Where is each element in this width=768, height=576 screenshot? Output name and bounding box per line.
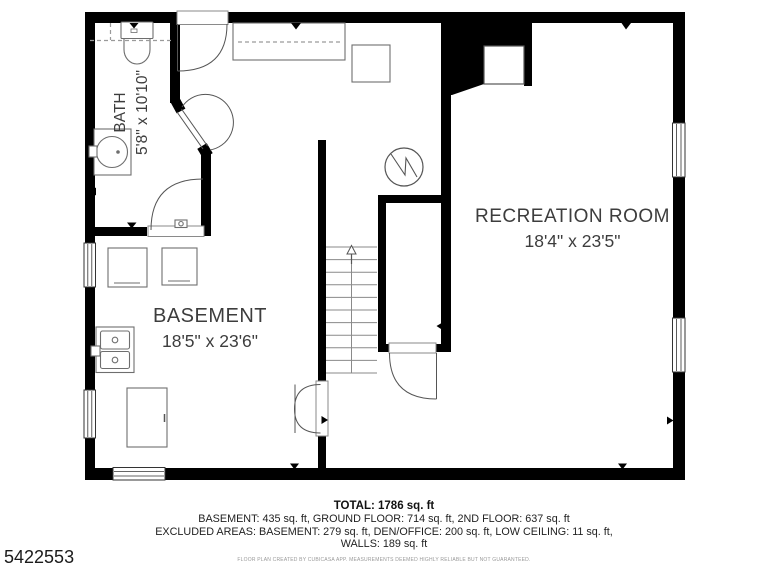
bath-name: BATH	[111, 69, 133, 154]
chimney-flue	[484, 46, 524, 84]
window-right-lower	[673, 318, 686, 372]
freezer-icon	[127, 388, 167, 447]
summary-excluded: EXCLUDED AREAS: BASEMENT: 279 sq. ft, DE…	[0, 526, 768, 539]
window-left-lower	[84, 390, 96, 438]
summary-total: TOTAL: 1786 sq. ft	[0, 500, 768, 513]
room-label-bath: BATH 5'8" x 10'10"	[76, 56, 190, 168]
room-label-basement: BASEMENT 18'5" x 23'6"	[85, 305, 335, 352]
basement-dims: 18'5" x 23'6"	[85, 331, 335, 352]
summary-floors: BASEMENT: 435 sq. ft, GROUND FLOOR: 714 …	[0, 513, 768, 526]
doors	[148, 11, 437, 436]
storage-square-1	[108, 248, 147, 287]
recreation-dims: 18'4" x 23'5"	[455, 231, 690, 252]
water-heater-icon	[385, 148, 423, 186]
stairs-up-arrow-icon	[347, 246, 356, 265]
window-bottom	[113, 468, 165, 481]
window-left-upper	[84, 243, 96, 287]
door-closet	[389, 343, 437, 399]
storage-square-2	[162, 248, 197, 285]
appliance-square	[352, 45, 390, 82]
floor-plan-page: BATH 5'8" x 10'10" BASEMENT 18'5" x 23'6…	[0, 0, 768, 576]
recreation-name: RECREATION ROOM	[455, 206, 690, 228]
summary-walls: WALLS: 189 sq. ft	[0, 538, 768, 551]
double-door-basement	[295, 381, 329, 436]
basement-name: BASEMENT	[85, 305, 335, 328]
bath-dims: 5'8" x 10'10"	[133, 69, 155, 154]
area-summary: TOTAL: 1786 sq. ft BASEMENT: 435 sq. ft,…	[0, 500, 768, 563]
plan-id: 5422553	[4, 547, 74, 568]
window-right-upper	[673, 123, 686, 177]
tp-holder-icon	[175, 220, 187, 228]
room-label-recreation: RECREATION ROOM 18'4" x 23'5"	[455, 206, 690, 252]
summary-disclaimer: FLOOR PLAN CREATED BY CUBICASA APP. MEAS…	[0, 557, 768, 563]
